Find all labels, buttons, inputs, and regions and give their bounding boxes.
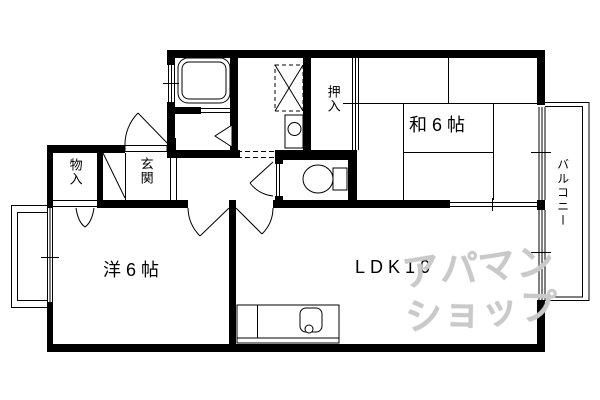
room-label-washitsu: 和6帖: [409, 116, 470, 135]
floor-plan-drawing: [0, 0, 600, 400]
western-door-arc: [188, 208, 200, 236]
room-label-balcony: バルコニー: [556, 158, 569, 228]
entrance-door-arc: [125, 113, 138, 146]
kitchen-faucet-icon: [305, 325, 313, 333]
western-room: [12, 206, 230, 308]
toilet-room: [250, 162, 347, 196]
toilet-door-arc: [250, 183, 273, 196]
bay-window-sill: [12, 206, 48, 308]
toilet-icon: [303, 165, 333, 193]
room-label-western: 洋6帖: [103, 261, 164, 280]
bathtub-icon-inner: [182, 62, 226, 99]
bathtub-icon: [178, 58, 230, 103]
bath-door-icon: [215, 125, 232, 147]
floor-plan: 物入 玄関 押入 和6帖 洋6帖 LDK10 バルコニー アパマン ショップ: [0, 0, 600, 400]
room-label-genkan: 玄関: [139, 157, 153, 185]
ldk-door-leaf: [236, 208, 262, 234]
toilet-icon: [333, 168, 347, 190]
room-label-monoire: 物入: [68, 158, 82, 186]
washbasin-icon: [288, 123, 301, 136]
entrance-door-leaf: [138, 113, 170, 146]
shoe-cabinet-diagonal: [103, 153, 125, 198]
monoire-double-door: [76, 208, 94, 227]
washroom: [237, 65, 303, 158]
western-door-leaf: [200, 208, 229, 236]
kitchen-counter-base: [237, 338, 339, 343]
bay-window-sill: [18, 213, 48, 301]
toilet-door-leaf: [250, 162, 273, 183]
entrance-threshold: [125, 146, 167, 152]
monoire-closet: [53, 201, 97, 228]
apamanshop-watermark: アパマン ショップ: [389, 240, 570, 339]
room-label-oshiire: 押入: [326, 85, 340, 113]
kitchen-counter-icon: [237, 305, 339, 338]
ldk-door-arc: [262, 208, 273, 234]
